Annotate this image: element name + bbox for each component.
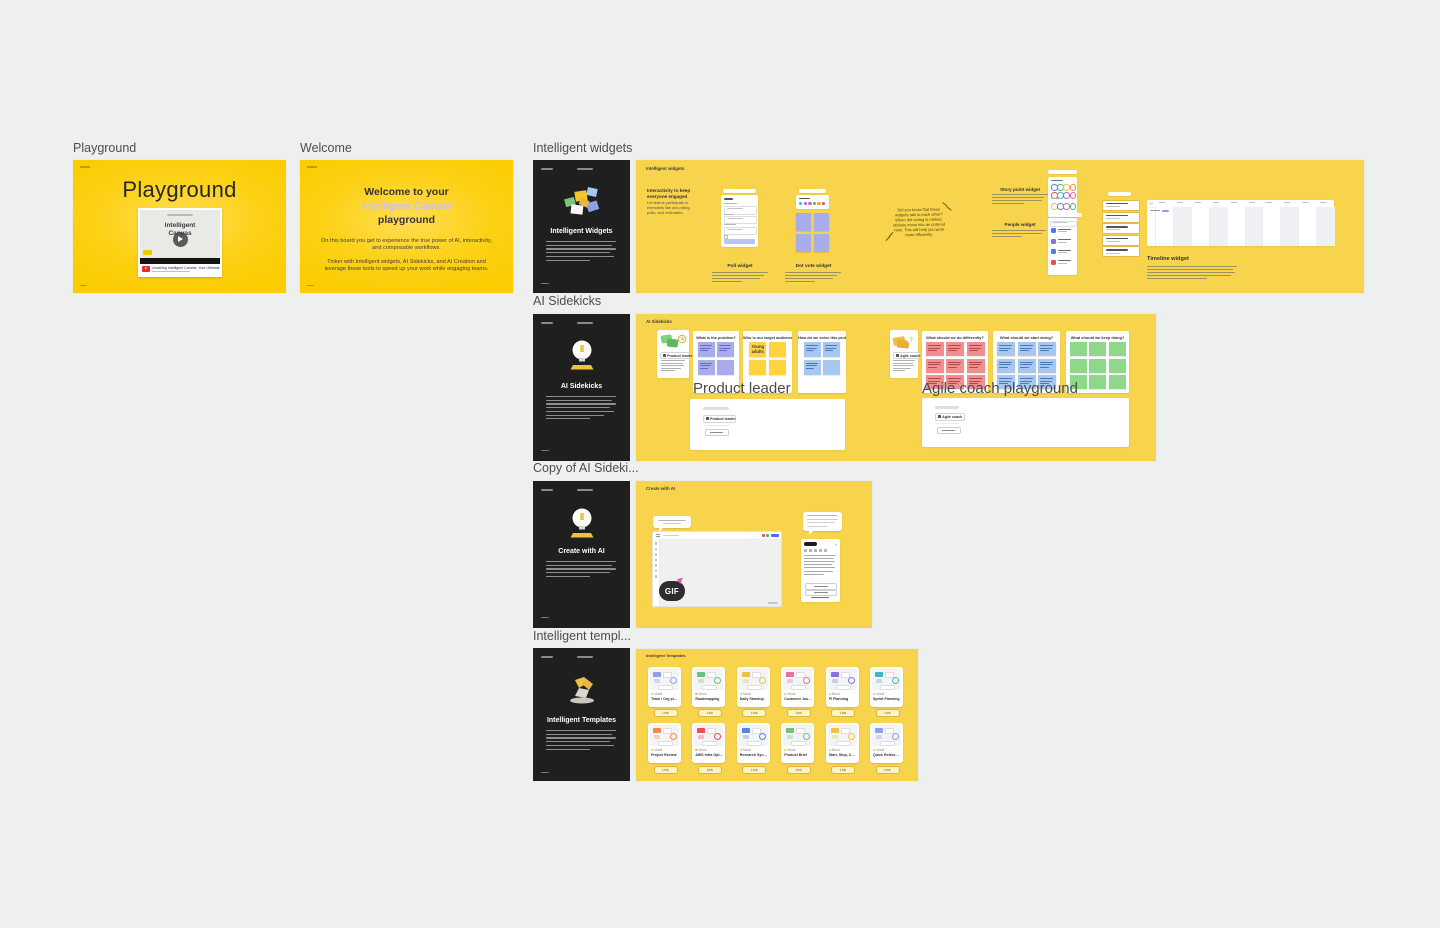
illustration-shape xyxy=(848,733,855,740)
template-card[interactable]: MuralCustomer Journey Mapping xyxy=(781,667,814,707)
timeline-description-line xyxy=(1147,278,1207,279)
timeline-column xyxy=(1173,207,1192,247)
dark-card-body-line xyxy=(546,749,590,750)
template-badge-text: Mural xyxy=(832,748,840,752)
agile-coach-overlay-title[interactable]: Agile coach playground xyxy=(922,380,1078,397)
template-badge-text: Mural xyxy=(654,748,662,752)
person-subtext-line xyxy=(1058,231,1067,232)
vote-dot-icon[interactable] xyxy=(799,202,802,205)
sticky-note[interactable] xyxy=(926,342,944,356)
story-point-description-line xyxy=(992,200,1042,201)
product-leader-panel-card[interactable]: Product leader xyxy=(690,399,845,450)
sticky-text-line xyxy=(1020,364,1032,365)
timeline-widget-card[interactable] xyxy=(1147,200,1334,246)
dark-card-mark xyxy=(541,489,553,491)
mural-dot-icon xyxy=(740,693,742,695)
template-badge-text: Mural xyxy=(743,692,751,696)
template-title: Daily Standup xyxy=(740,697,768,701)
template-badge-text: Mural xyxy=(876,692,884,696)
question-card-subtext xyxy=(1106,241,1120,242)
timeline-widget-label: Timeline widget xyxy=(1147,256,1207,262)
sticky-text-line xyxy=(969,348,981,349)
sticky-text-line xyxy=(719,348,730,349)
dark-card-intelligent-widgets[interactable]: Intelligent Widgets xyxy=(533,160,630,293)
people-widget-description xyxy=(992,230,1048,242)
dark-card-body-line xyxy=(546,411,614,412)
tshirt-size-label xyxy=(1051,198,1061,199)
handwritten-note[interactable]: Did you know that these widgets talk to … xyxy=(892,208,947,238)
dark-card-footer-mark xyxy=(541,283,549,284)
generate-button[interactable] xyxy=(705,429,729,436)
sticky-text-line xyxy=(700,368,708,369)
menu-icon xyxy=(656,536,660,537)
poll-field-label xyxy=(724,203,737,204)
sticky-text-line xyxy=(948,364,960,365)
vote-dot-icon[interactable] xyxy=(822,202,825,205)
dark-card-body-line xyxy=(546,741,610,742)
template-card[interactable]: MuralSprint Planning xyxy=(870,667,903,707)
dot-vote-stickies[interactable] xyxy=(796,213,829,253)
sticky-note[interactable] xyxy=(1089,375,1106,389)
template-illustration xyxy=(872,669,901,690)
illustration-pill xyxy=(880,685,895,690)
dark-card-body-line xyxy=(546,561,616,562)
template-illustration xyxy=(650,725,679,746)
poll-field-label xyxy=(724,224,736,225)
sticky-note[interactable] xyxy=(926,359,944,373)
menu-icon xyxy=(656,534,660,535)
template-card-grid: MuralTeam / Org planningLinkMuralRoadmap… xyxy=(636,649,918,781)
template-link-button[interactable]: Link xyxy=(831,709,855,717)
playground-title: Playground xyxy=(73,177,286,203)
sticky-text-line xyxy=(948,350,957,351)
question-card[interactable] xyxy=(1102,235,1140,246)
template-card[interactable]: MuralAWS Infra Optimization xyxy=(692,723,725,763)
illustration-shape xyxy=(786,672,794,677)
template-illustration xyxy=(783,669,812,690)
sticky-note[interactable] xyxy=(1038,359,1056,373)
sticky-note[interactable] xyxy=(1109,359,1126,373)
widget-toolbar-pill xyxy=(1108,192,1131,196)
person-name-line xyxy=(1058,229,1071,230)
play-button-icon[interactable] xyxy=(173,232,188,247)
template-badge-text: Mural xyxy=(876,748,884,752)
sticky-note[interactable] xyxy=(698,360,715,375)
product-leader-overlay-title[interactable]: Product leader xyxy=(693,380,791,397)
poll-input-text xyxy=(727,229,743,230)
mural-dot-icon xyxy=(695,693,697,695)
question-card[interactable] xyxy=(1102,200,1140,211)
frame-label-playground[interactable]: Playground xyxy=(73,141,136,155)
illustration-shape xyxy=(654,679,660,683)
timeline-tick-label xyxy=(1177,202,1183,203)
timeline-column xyxy=(1245,207,1264,247)
template-badge: Mural xyxy=(784,693,795,696)
dark-card-title: Intelligent Widgets xyxy=(533,228,630,235)
sticky-text-line xyxy=(969,362,982,363)
frame-playground[interactable]: Playground Intelligent Canvas Unveiling … xyxy=(73,160,286,293)
dark-card-body-line xyxy=(546,252,610,253)
tool-icon[interactable] xyxy=(655,564,658,567)
illustration-shape xyxy=(759,677,766,684)
dark-card-mark xyxy=(541,168,553,170)
sticky-text-line xyxy=(825,345,837,346)
question-card[interactable] xyxy=(1102,223,1140,234)
close-icon[interactable]: ✕ xyxy=(834,543,837,546)
sticky-note[interactable] xyxy=(1109,342,1126,356)
sticky-note[interactable] xyxy=(698,342,715,357)
welcome-heading-accent: Intelligent Canvas xyxy=(362,200,452,212)
template-card[interactable]: MuralStart, Stop, Continue Retro xyxy=(826,723,859,763)
people-widget-card[interactable] xyxy=(1048,218,1077,275)
question-panel-header: Who is our target audience xyxy=(743,335,792,340)
frame-welcome[interactable]: Welcome to your Intelligent Canvas playg… xyxy=(300,160,513,293)
sticky-note[interactable] xyxy=(804,342,821,357)
illustration-shape xyxy=(875,672,883,677)
sticky-note[interactable] xyxy=(997,342,1015,356)
poll-description-line xyxy=(712,272,768,273)
sticky-text-line xyxy=(1040,362,1053,363)
timeline-description-line xyxy=(1147,266,1237,267)
speech-bubble[interactable] xyxy=(653,516,691,528)
frame-ai-sidekicks[interactable]: AI Sidekicks Product leader What is the … xyxy=(636,314,1156,461)
question-card-subtext xyxy=(1106,253,1120,254)
sticky-text-line xyxy=(1040,345,1053,346)
sticky-text-line xyxy=(969,345,982,346)
estimate-dot-icon[interactable] xyxy=(1063,203,1070,210)
question-card-title xyxy=(1106,238,1128,239)
template-link-button[interactable]: Link xyxy=(698,766,722,774)
panel-tool-icon[interactable] xyxy=(809,549,812,552)
sticky-text-line xyxy=(700,348,711,349)
estimate-dot-icon[interactable] xyxy=(1063,192,1070,199)
illustration-shape xyxy=(742,672,750,677)
template-badge: Mural xyxy=(651,693,662,696)
template-link-button[interactable]: Link xyxy=(787,709,811,717)
template-card[interactable]: MuralResearch Synthesis xyxy=(737,723,770,763)
welcome-paragraph-1: On this board you get to experience the … xyxy=(318,238,495,252)
panel-button[interactable] xyxy=(805,583,837,590)
template-badge: Mural xyxy=(784,749,795,752)
mural-dot-icon xyxy=(740,749,742,751)
video-caption-bar[interactable]: Unveiling Intelligent Canvas: Your Ultim… xyxy=(140,264,220,275)
dark-card-mark xyxy=(541,656,553,658)
template-badge: Mural xyxy=(740,693,751,696)
sticky-note[interactable] xyxy=(769,342,786,357)
panel-button[interactable] xyxy=(805,590,837,597)
illustration-shape xyxy=(786,728,794,733)
welcome-paragraph-2: Tinker with Intelligent widgets, AI Side… xyxy=(318,259,495,273)
illustration-shape xyxy=(841,728,850,734)
sticky-note[interactable] xyxy=(804,360,821,375)
sticky-note[interactable] xyxy=(749,360,766,375)
question-card-title xyxy=(1106,249,1128,250)
illustration-shape xyxy=(670,733,677,740)
widget-toolbar-pill xyxy=(799,189,826,193)
template-card[interactable]: MuralQuick Retrospective xyxy=(870,723,903,763)
timeline-tick-label xyxy=(1266,202,1272,203)
sticky-note[interactable] xyxy=(1070,359,1087,373)
template-card[interactable]: MuralPI Planning xyxy=(826,667,859,707)
template-link-button[interactable]: Link xyxy=(654,766,678,774)
frame-label-intelligent-templates[interactable]: Intelligent templ... xyxy=(533,629,631,643)
dark-card-body-line xyxy=(546,565,612,566)
sticky-note[interactable] xyxy=(717,360,734,375)
agile-coach-panel-card[interactable]: Agile coach xyxy=(922,398,1129,447)
dark-card-mark xyxy=(577,489,593,491)
estimate-dot-icon[interactable] xyxy=(1063,184,1070,191)
sticky-text-line xyxy=(928,378,941,379)
panel-text-line xyxy=(804,567,835,568)
panel-tool-icon[interactable] xyxy=(824,549,827,552)
template-link-button[interactable]: Link xyxy=(876,766,900,774)
panel-tool-icon[interactable] xyxy=(814,549,817,552)
sticky-note[interactable] xyxy=(769,360,786,375)
sticky-note[interactable] xyxy=(717,342,734,357)
template-link-button[interactable]: Link xyxy=(698,709,722,717)
dark-card-title: AI Sidekicks xyxy=(533,383,630,390)
dark-card-body-line xyxy=(546,734,612,735)
sticky-note[interactable] xyxy=(796,213,811,231)
card-body-line xyxy=(893,370,905,371)
sticky-note[interactable] xyxy=(1109,375,1126,389)
sticky-text-line xyxy=(825,350,833,351)
dark-card-body-text xyxy=(533,559,630,587)
panel-tool-icon[interactable] xyxy=(819,549,822,552)
sticky-text-line xyxy=(806,345,818,346)
sticky-text-line xyxy=(719,345,731,346)
template-title: Customer Journey Mapping xyxy=(784,697,812,701)
question-card[interactable] xyxy=(1102,246,1140,257)
dark-card-body-line xyxy=(546,572,610,573)
tool-icon[interactable] xyxy=(655,559,658,562)
gif-badge: GIF xyxy=(659,581,685,601)
panel-link[interactable] xyxy=(811,597,829,598)
sticky-note[interactable] xyxy=(997,359,1015,373)
tool-icon[interactable] xyxy=(655,548,658,551)
vote-dot-icon[interactable] xyxy=(804,202,807,205)
frame-corner-mark xyxy=(307,285,314,287)
sticky-note[interactable] xyxy=(1018,359,1036,373)
panel-tool-icon[interactable] xyxy=(804,549,807,552)
generate-button[interactable] xyxy=(937,427,961,434)
illustration-shape xyxy=(697,672,705,677)
agile-coach-card[interactable]: ? Agile coach xyxy=(890,330,918,378)
template-link-button[interactable]: Link xyxy=(831,766,855,774)
sticky-text-line xyxy=(948,367,957,368)
sticky-text-line xyxy=(806,350,814,351)
sketch-mark xyxy=(946,206,951,211)
dark-card-intelligent-templates[interactable]: Intelligent Templates xyxy=(533,648,630,781)
template-badge-text: Mural xyxy=(654,692,662,696)
sticky-note[interactable] xyxy=(967,359,985,373)
template-illustration xyxy=(783,725,812,746)
sticky-text-line xyxy=(969,367,978,368)
illustration-shape xyxy=(742,728,750,733)
card-body-line xyxy=(893,360,915,361)
sticky-note[interactable] xyxy=(1038,342,1056,356)
sticky-note[interactable] xyxy=(823,342,840,357)
template-link-button[interactable]: Link xyxy=(742,709,766,717)
template-title: AWS Infra Optimization xyxy=(695,753,723,757)
frame-intelligent-widgets[interactable]: Intelligent widgets Interactivity to kee… xyxy=(636,160,1364,293)
illustration-shape xyxy=(848,677,855,684)
sticky-note[interactable] xyxy=(823,360,840,375)
dot-vote-widget-description xyxy=(785,272,841,284)
mural-dot-icon xyxy=(651,693,653,695)
sticky-text-line xyxy=(928,362,941,363)
timeline-tick-label xyxy=(1249,202,1255,203)
question-card-stack[interactable] xyxy=(1102,200,1138,258)
poll-title-line xyxy=(724,198,733,200)
template-card[interactable]: MuralProduct Brief xyxy=(781,723,814,763)
sticky-note[interactable] xyxy=(946,359,964,373)
vote-dot-icon[interactable] xyxy=(817,202,820,205)
dot-vote-description-line xyxy=(785,275,837,276)
poll-field-label xyxy=(724,214,734,215)
widgets-pile-illustration xyxy=(533,184,630,220)
video-top-text xyxy=(167,214,193,216)
frame-label-copy-of-ai-sidekicks[interactable]: Copy of AI Sideki... xyxy=(533,461,639,475)
sticky-text-line xyxy=(700,363,712,364)
tool-icon[interactable] xyxy=(655,553,658,556)
story-point-widget-card[interactable] xyxy=(1048,177,1077,217)
dark-card-body-line xyxy=(546,248,616,249)
estimate-dot-icon[interactable] xyxy=(1070,203,1077,210)
template-card[interactable]: MuralDaily Standup xyxy=(737,667,770,707)
poll-input-text xyxy=(727,208,743,209)
people-description-line xyxy=(992,233,1042,234)
frame-label-ai-sidekicks[interactable]: AI Sidekicks xyxy=(533,294,601,308)
question-panel[interactable]: How do we solve this problem? xyxy=(798,331,846,393)
dark-card-body-line xyxy=(546,407,610,408)
poll-start-button[interactable] xyxy=(724,239,755,244)
template-card[interactable]: MuralTeam / Org planning xyxy=(648,667,681,707)
template-card[interactable]: MuralProject Review xyxy=(648,723,681,763)
frame-label-intelligent-widgets[interactable]: Intelligent widgets xyxy=(533,141,632,155)
dark-card-body-text xyxy=(533,239,630,269)
window-title xyxy=(663,535,679,536)
template-title: Start, Stop, Continue Retro xyxy=(829,753,857,757)
sticky-note[interactable] xyxy=(814,234,829,252)
illustration-shape xyxy=(752,728,761,734)
sticky-text-line xyxy=(999,378,1012,379)
mural-logo-badge xyxy=(143,250,152,256)
template-card[interactable]: MuralRoadmapping xyxy=(692,667,725,707)
dark-card-body-line xyxy=(546,568,616,569)
sketch-mark xyxy=(886,236,891,241)
frame-intelligent-templates[interactable]: Intelligent Templates MuralTeam / Org pl… xyxy=(636,649,918,781)
template-link-button[interactable]: Link xyxy=(742,766,766,774)
robot-arm-illustration xyxy=(533,673,630,705)
sticky-note[interactable] xyxy=(967,342,985,356)
question-card[interactable] xyxy=(1102,212,1140,223)
sticky-note[interactable] xyxy=(796,234,811,252)
template-illustration xyxy=(694,725,723,746)
sticky-text-line xyxy=(999,362,1012,363)
estimate-dot-icon[interactable] xyxy=(1070,184,1077,191)
illustration-shape xyxy=(876,679,882,683)
template-illustration xyxy=(828,669,857,690)
speech-bubble[interactable] xyxy=(803,512,842,531)
sticky-text-line xyxy=(1040,350,1049,351)
template-badge: Mural xyxy=(740,749,751,752)
panel-text-line xyxy=(804,555,836,556)
illustration-shape xyxy=(759,733,766,740)
illustration-pill xyxy=(658,741,673,746)
video-embed[interactable]: Intelligent Canvas Unveiling Intelligent… xyxy=(138,208,222,277)
sticky-text-line xyxy=(928,364,940,365)
vote-dot-icon[interactable] xyxy=(813,202,816,205)
poll-description-line xyxy=(712,278,760,279)
mural-dot-icon xyxy=(873,749,875,751)
illustration-shape xyxy=(832,679,838,683)
template-link-button[interactable]: Link xyxy=(654,709,678,717)
sticky-note[interactable] xyxy=(814,213,829,231)
vote-dot-icon[interactable] xyxy=(808,202,811,205)
template-badge: Mural xyxy=(873,693,884,696)
zoom-control xyxy=(768,602,778,604)
product-leader-tag: Product leader xyxy=(703,415,736,423)
video-caption-subtext xyxy=(152,271,190,272)
dark-card-body-line xyxy=(546,415,604,416)
poll-widget-card[interactable] xyxy=(721,195,758,247)
sticky-note[interactable] xyxy=(1089,342,1106,356)
board-overview-canvas[interactable]: Playground Welcome Intelligent widgets A… xyxy=(0,0,1440,928)
sticky-text-line xyxy=(969,364,981,365)
frame-label-welcome[interactable]: Welcome xyxy=(300,141,352,155)
dark-card-create-with-ai[interactable]: Create with AI xyxy=(533,481,630,628)
sticky-note[interactable] xyxy=(1070,342,1087,356)
illustration-pill xyxy=(791,685,806,690)
tool-icon[interactable] xyxy=(655,570,658,573)
sticky-text-line xyxy=(1040,364,1052,365)
illustration-shape xyxy=(752,672,761,678)
tool-icon[interactable] xyxy=(655,542,658,545)
dark-card-body-text xyxy=(533,394,630,428)
people-description-line xyxy=(992,230,1046,231)
timeline-column xyxy=(1280,207,1299,247)
agile-coach-tag: Agile coach xyxy=(935,413,965,421)
timeline-task-bar[interactable] xyxy=(1162,210,1169,212)
sticky-note[interactable] xyxy=(946,342,964,356)
tool-icon[interactable] xyxy=(655,575,658,578)
sticky-note[interactable] xyxy=(1089,359,1106,373)
mural-dot-icon xyxy=(784,693,786,695)
sticky-note[interactable] xyxy=(1018,342,1036,356)
illustration-shape xyxy=(698,679,704,683)
template-link-button[interactable]: Link xyxy=(876,709,900,717)
frame-create-with-ai[interactable]: Create with AI GIF xyxy=(636,481,872,628)
sticky-text-line xyxy=(1020,367,1029,368)
dark-card-ai-sidekicks[interactable]: AI Sidekicks xyxy=(533,314,630,461)
share-button[interactable] xyxy=(771,534,779,538)
estimate-dot-icon[interactable] xyxy=(1070,192,1077,199)
template-link-button[interactable]: Link xyxy=(787,766,811,774)
timeline-column xyxy=(1227,207,1246,247)
illustration-shape xyxy=(743,679,749,683)
illustration-shape xyxy=(803,677,810,684)
template-illustration xyxy=(872,725,901,746)
template-illustration xyxy=(739,669,768,690)
sticky-text-line xyxy=(806,368,814,369)
dot-vote-widget-card[interactable] xyxy=(796,195,829,209)
sticky-note[interactable]: Young adults xyxy=(749,342,766,357)
panel-text-line xyxy=(804,571,833,572)
widgets-headline: Interactivity to keep everyone engaged xyxy=(647,188,701,199)
dark-card-mark xyxy=(577,322,593,324)
question-panel-header: How do we solve this problem? xyxy=(798,335,846,340)
